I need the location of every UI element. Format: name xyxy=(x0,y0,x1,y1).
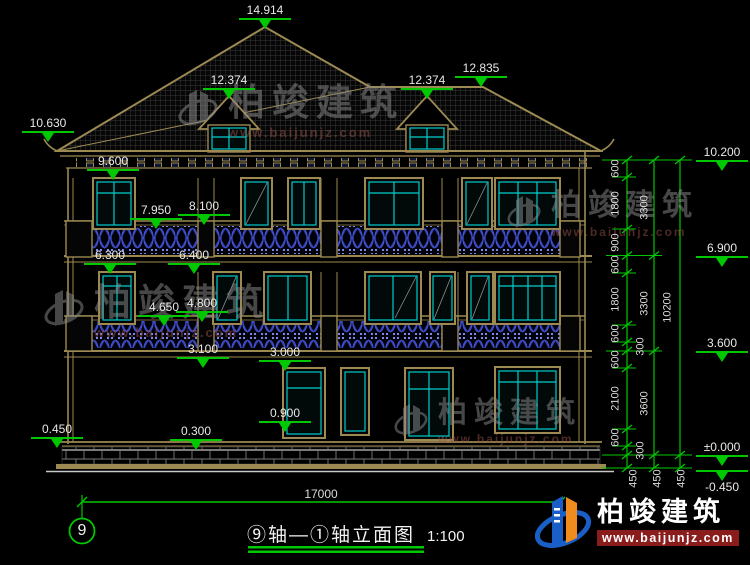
elevation-marker-right-eave: 10.200 xyxy=(696,146,748,171)
marker-triangle-icon xyxy=(716,258,728,267)
elevation-marker-f1-window-right: 3.000 xyxy=(259,346,311,371)
elevation-marker-right-f3: 6.900 xyxy=(696,242,748,267)
cad-elevation-screenshot: 柏竣建筑 www.baijunjz.com 柏竣建筑 www.baijunjz.… xyxy=(0,0,750,565)
elevation-marker-f1-window-left: 3.100 xyxy=(177,343,229,368)
marker-triangle-icon xyxy=(259,20,271,29)
ground-beam xyxy=(56,464,606,469)
marker-triangle-icon xyxy=(716,353,728,362)
marker-triangle-icon xyxy=(223,90,235,99)
elevation-marker-ridge: 12.835 xyxy=(455,62,507,87)
elevation-marker-plinth-mid: 0.300 xyxy=(170,425,222,450)
dim-label: 600 xyxy=(610,338,623,382)
axis-bubble-label: 9 xyxy=(69,522,95,540)
watermark-url: www.baijunjz.com xyxy=(438,432,582,446)
elevation-marker-f3-window: 9.600 xyxy=(87,155,139,180)
watermark-url: www.baijunjz.com xyxy=(551,225,699,239)
dim-label: 1800 xyxy=(610,182,623,226)
elevation-marker-dormer-right: 12.374 xyxy=(401,74,453,99)
elevation-marker-plinth-left: 0.450 xyxy=(31,423,83,448)
elevation-marker-f3-rail-left: 7.950 xyxy=(130,204,182,229)
elevation-marker-f2-window-right: 6.400 xyxy=(168,249,220,274)
marker-triangle-icon xyxy=(196,313,208,322)
watermark: 柏竣建筑 www.baijunjz.com xyxy=(505,191,699,239)
elevation-marker-f1-sill: 0.900 xyxy=(259,407,311,432)
brand-name: 柏竣建筑 xyxy=(597,498,739,528)
elevation-marker-eave-left: 10.630 xyxy=(22,117,74,142)
watermark-brand: 柏竣建筑 xyxy=(551,191,699,221)
marker-triangle-icon xyxy=(279,362,291,371)
marker-triangle-icon xyxy=(716,162,728,171)
dim-label: 3300 xyxy=(639,186,652,230)
watermark-logo-icon xyxy=(505,191,543,233)
marker-triangle-icon xyxy=(421,90,433,99)
dim-label: 2100 xyxy=(610,377,623,421)
watermark-url: www.baijunjz.com xyxy=(94,325,270,340)
title-underline xyxy=(248,546,424,553)
elevation-marker-peak: 14.914 xyxy=(239,4,291,29)
watermark-logo-icon xyxy=(42,284,86,332)
brand-url: www.baijunjz.com xyxy=(597,530,739,546)
brand-logo-icon xyxy=(533,486,593,558)
drawing-scale: 1:100 xyxy=(427,528,465,545)
elevation-marker-f2-window-left: 6.300 xyxy=(84,249,136,274)
drawing-title: ⑨轴—①轴立面图 xyxy=(247,520,415,547)
watermark-url: www.baijunjz.com xyxy=(228,125,404,140)
brand-logo-block: 柏竣建筑 www.baijunjz.com xyxy=(533,486,739,558)
marker-triangle-icon xyxy=(716,457,728,466)
marker-triangle-icon xyxy=(197,359,209,368)
elevation-marker-right-ground: ±0.000 xyxy=(696,441,748,466)
dim-label: 3300 xyxy=(639,282,652,326)
elevation-marker-right-f2: 3.600 xyxy=(696,337,748,362)
marker-triangle-icon xyxy=(42,133,54,142)
watermark-brand: 柏竣建筑 xyxy=(438,399,582,428)
marker-triangle-icon xyxy=(104,265,116,274)
drawing-title-block: ⑨轴—①轴立面图 1:100 xyxy=(247,520,465,547)
dim-label: 10200 xyxy=(662,286,675,330)
elevation-marker-f2-rail-right: 4.800 xyxy=(176,297,228,322)
watermark-logo-icon xyxy=(392,399,430,441)
marker-triangle-icon xyxy=(158,317,170,326)
marker-triangle-icon xyxy=(475,78,487,87)
dim-label: 300 xyxy=(635,325,648,369)
marker-triangle-icon xyxy=(51,439,63,448)
marker-triangle-icon xyxy=(188,265,200,274)
watermark: 柏竣建筑 www.baijunjz.com xyxy=(392,399,582,446)
marker-triangle-icon xyxy=(107,171,119,180)
marker-triangle-icon xyxy=(279,423,291,432)
marker-triangle-icon xyxy=(190,441,202,450)
marker-triangle-icon xyxy=(198,216,210,225)
overall-width-dimension: 17000 xyxy=(291,487,351,501)
stone-plinth xyxy=(62,447,600,464)
marker-triangle-icon xyxy=(150,220,162,229)
dim-label: 3600 xyxy=(639,382,652,426)
elevation-marker-f3-rail-right: 8.100 xyxy=(178,200,230,225)
elevation-marker-dormer-left: 12.374 xyxy=(203,74,255,99)
dim-label: 600 xyxy=(610,416,623,460)
